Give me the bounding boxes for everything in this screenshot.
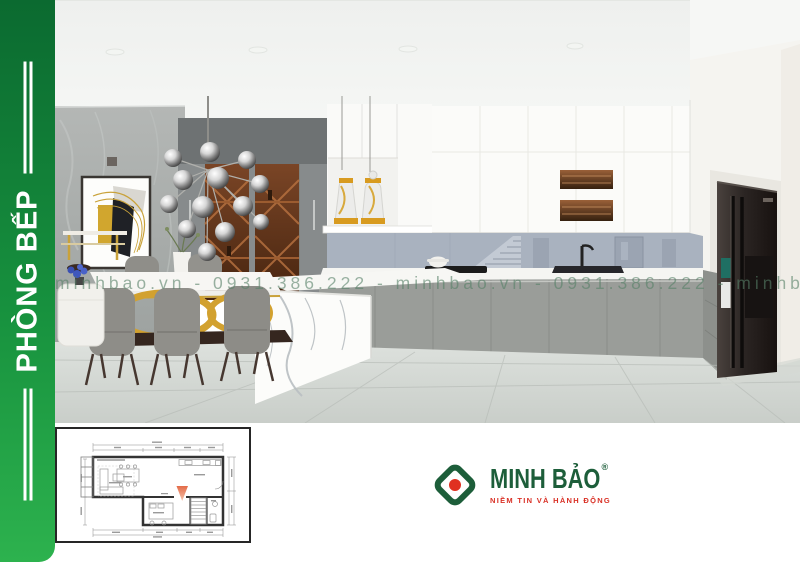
red-dot (449, 479, 461, 491)
logo-text-group: MINH BẢO ® NIỀM TIN VÀ HÀNH ĐỘNG (490, 465, 608, 505)
brand-tagline: NIỀM TIN VÀ HÀNH ĐỘNG (490, 496, 602, 505)
kitchen-render-image (55, 0, 800, 423)
green-sidebar: PHÒNG BẾP (0, 0, 55, 562)
plan-walls (93, 457, 223, 525)
registered-mark-icon: ® (602, 463, 609, 472)
plan-balcony (81, 457, 93, 497)
floor-plan-thumbnail (55, 427, 251, 543)
brochure-page: PHÒNG BẾP (0, 0, 800, 565)
upper-cabinets (432, 106, 690, 233)
backsplash (327, 233, 703, 270)
refrigerator (717, 182, 777, 378)
decorative-double-line (23, 61, 32, 173)
minh-bao-diamond-icon (429, 459, 481, 511)
brand-name: MINH BẢO (490, 465, 600, 493)
decorative-double-line (23, 389, 32, 501)
minh-bao-logo: MINH BẢO ® NIỀM TIN VÀ HÀNH ĐỘNG (429, 459, 608, 511)
sidebar-title-group: PHÒNG BẾP (11, 61, 44, 500)
room-title: PHÒNG BẾP (11, 189, 44, 372)
